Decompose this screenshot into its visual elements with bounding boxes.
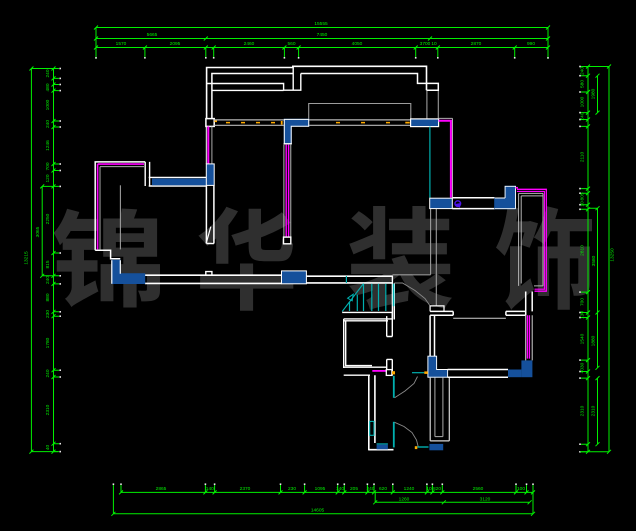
svg-text:700: 700 bbox=[580, 298, 586, 306]
svg-text:1246: 1246 bbox=[45, 140, 51, 151]
svg-text:1570: 1570 bbox=[116, 41, 127, 47]
svg-text:240: 240 bbox=[580, 67, 586, 75]
svg-text:240: 240 bbox=[366, 486, 374, 492]
svg-text:15555: 15555 bbox=[314, 21, 328, 27]
svg-text:3700: 3700 bbox=[420, 41, 431, 47]
svg-text:230: 230 bbox=[288, 486, 296, 492]
svg-text:240: 240 bbox=[45, 120, 51, 128]
svg-text:3120: 3120 bbox=[480, 496, 491, 502]
svg-text:2310: 2310 bbox=[580, 405, 586, 416]
svg-text:560: 560 bbox=[287, 41, 295, 47]
svg-text:4050: 4050 bbox=[352, 41, 363, 47]
svg-text:2095: 2095 bbox=[170, 41, 181, 47]
svg-text:2110: 2110 bbox=[580, 152, 586, 163]
svg-text:14605: 14605 bbox=[311, 507, 325, 513]
svg-text:2310: 2310 bbox=[591, 405, 597, 416]
svg-text:1540: 1540 bbox=[580, 333, 586, 344]
svg-text:620: 620 bbox=[379, 486, 387, 492]
svg-text:13215: 13215 bbox=[24, 251, 30, 265]
svg-text:40: 40 bbox=[45, 445, 51, 451]
svg-text:240: 240 bbox=[45, 69, 51, 77]
svg-text:1880: 1880 bbox=[591, 335, 597, 346]
svg-text:205: 205 bbox=[350, 486, 358, 492]
svg-text:1000: 1000 bbox=[45, 99, 51, 110]
svg-text:1095: 1095 bbox=[315, 486, 326, 492]
svg-text:120: 120 bbox=[45, 174, 51, 182]
svg-text:240: 240 bbox=[45, 369, 51, 377]
svg-text:2370: 2370 bbox=[240, 486, 251, 492]
svg-text:990: 990 bbox=[527, 41, 535, 47]
svg-text:3580: 3580 bbox=[591, 255, 597, 266]
svg-text:1260: 1260 bbox=[399, 496, 410, 502]
svg-text:140: 140 bbox=[206, 486, 214, 492]
svg-text:130: 130 bbox=[580, 311, 586, 319]
svg-text:1240: 1240 bbox=[404, 486, 415, 492]
svg-text:2460: 2460 bbox=[244, 41, 255, 47]
svg-text:2310: 2310 bbox=[45, 404, 51, 415]
svg-text:2250: 2250 bbox=[45, 213, 51, 224]
svg-text:2865: 2865 bbox=[156, 486, 167, 492]
svg-text:240: 240 bbox=[580, 112, 586, 120]
svg-text:240: 240 bbox=[45, 276, 51, 284]
svg-text:3065: 3065 bbox=[35, 226, 41, 237]
svg-text:5665: 5665 bbox=[147, 32, 158, 38]
svg-text:2560: 2560 bbox=[473, 486, 484, 492]
svg-text:4030: 4030 bbox=[580, 362, 586, 373]
svg-text:10: 10 bbox=[426, 486, 432, 492]
svg-text:820: 820 bbox=[433, 486, 441, 492]
svg-text:1980: 1980 bbox=[591, 88, 597, 99]
svg-text:700: 700 bbox=[45, 162, 51, 170]
svg-text:100: 100 bbox=[517, 486, 525, 492]
svg-text:2870: 2870 bbox=[471, 41, 482, 47]
svg-text:1000: 1000 bbox=[580, 96, 586, 107]
svg-text:805: 805 bbox=[580, 192, 586, 200]
svg-text:580: 580 bbox=[580, 80, 586, 88]
svg-text:13250: 13250 bbox=[610, 248, 616, 262]
svg-text:1780: 1780 bbox=[45, 337, 51, 348]
svg-text:10: 10 bbox=[580, 201, 586, 207]
svg-text:140: 140 bbox=[336, 486, 344, 492]
svg-text:480: 480 bbox=[45, 83, 51, 91]
svg-text:880: 880 bbox=[45, 293, 51, 301]
svg-text:7450: 7450 bbox=[317, 32, 328, 38]
svg-text:2810: 2810 bbox=[580, 245, 586, 256]
svg-text:10: 10 bbox=[431, 41, 437, 47]
svg-text:815: 815 bbox=[45, 260, 51, 268]
svg-text:230: 230 bbox=[45, 310, 51, 318]
